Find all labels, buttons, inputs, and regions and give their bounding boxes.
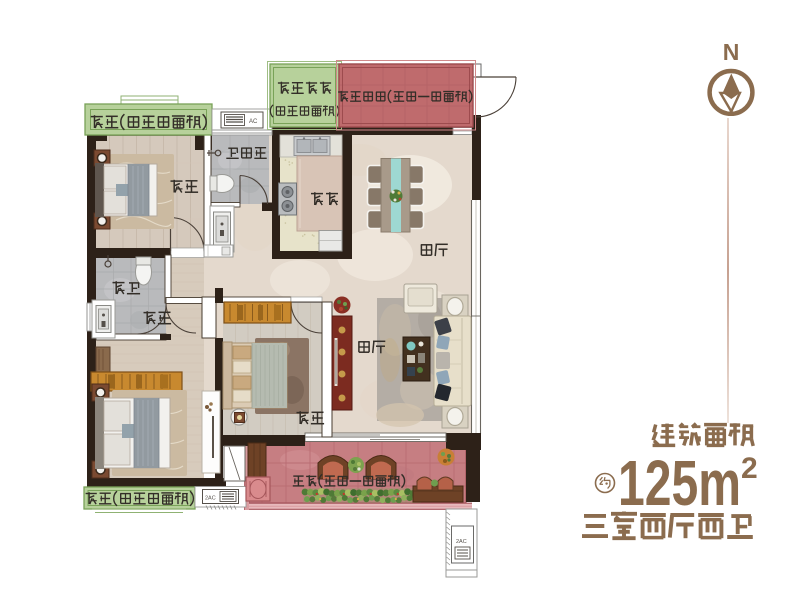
svg-text:N: N bbox=[723, 39, 740, 65]
svg-text:AC: AC bbox=[249, 119, 258, 125]
svg-text:2AC: 2AC bbox=[456, 539, 467, 545]
svg-text:125m: 125m bbox=[618, 447, 741, 519]
svg-text:2AC: 2AC bbox=[205, 496, 216, 502]
svg-text:2: 2 bbox=[741, 452, 758, 485]
